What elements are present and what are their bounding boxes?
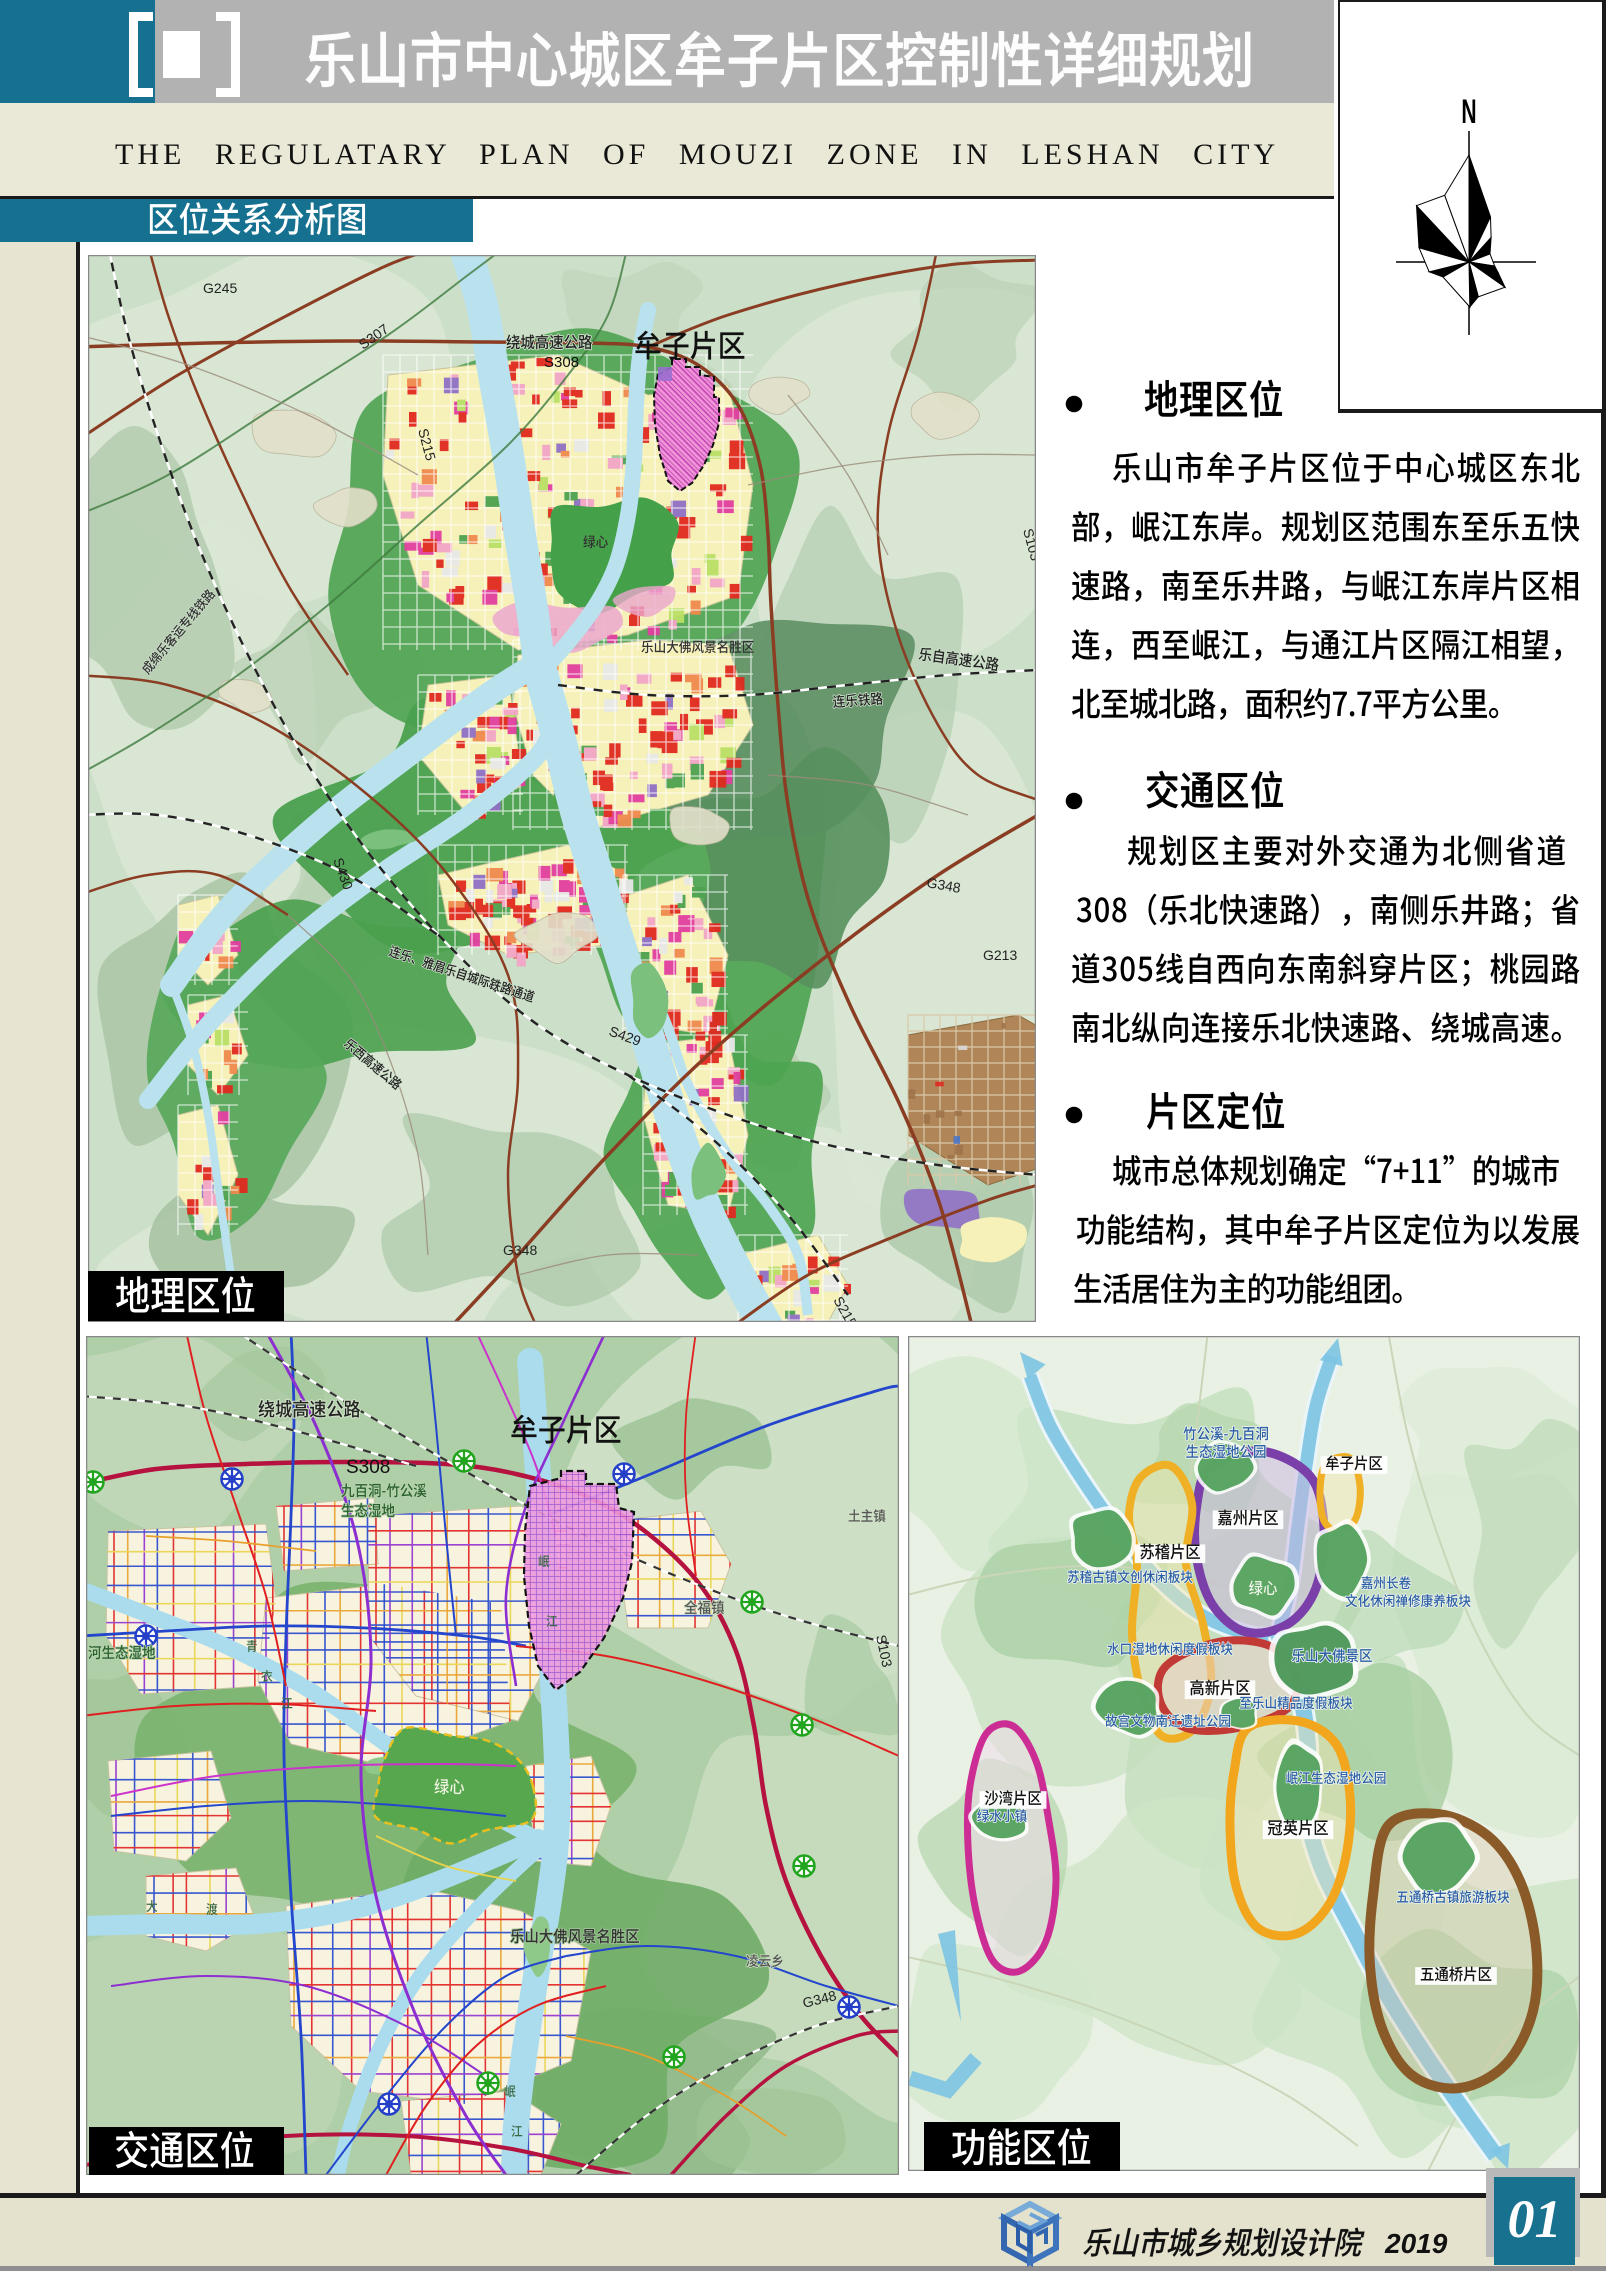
svg-text:S308: S308: [346, 1457, 390, 1478]
svg-text:G245: G245: [203, 280, 237, 296]
svg-text:N: N: [1461, 92, 1476, 130]
svg-text:G213: G213: [983, 947, 1017, 963]
svg-text:G348: G348: [503, 1242, 537, 1258]
svg-text:S308: S308: [544, 354, 579, 371]
svg-text:2019: 2019: [1384, 2228, 1448, 2259]
